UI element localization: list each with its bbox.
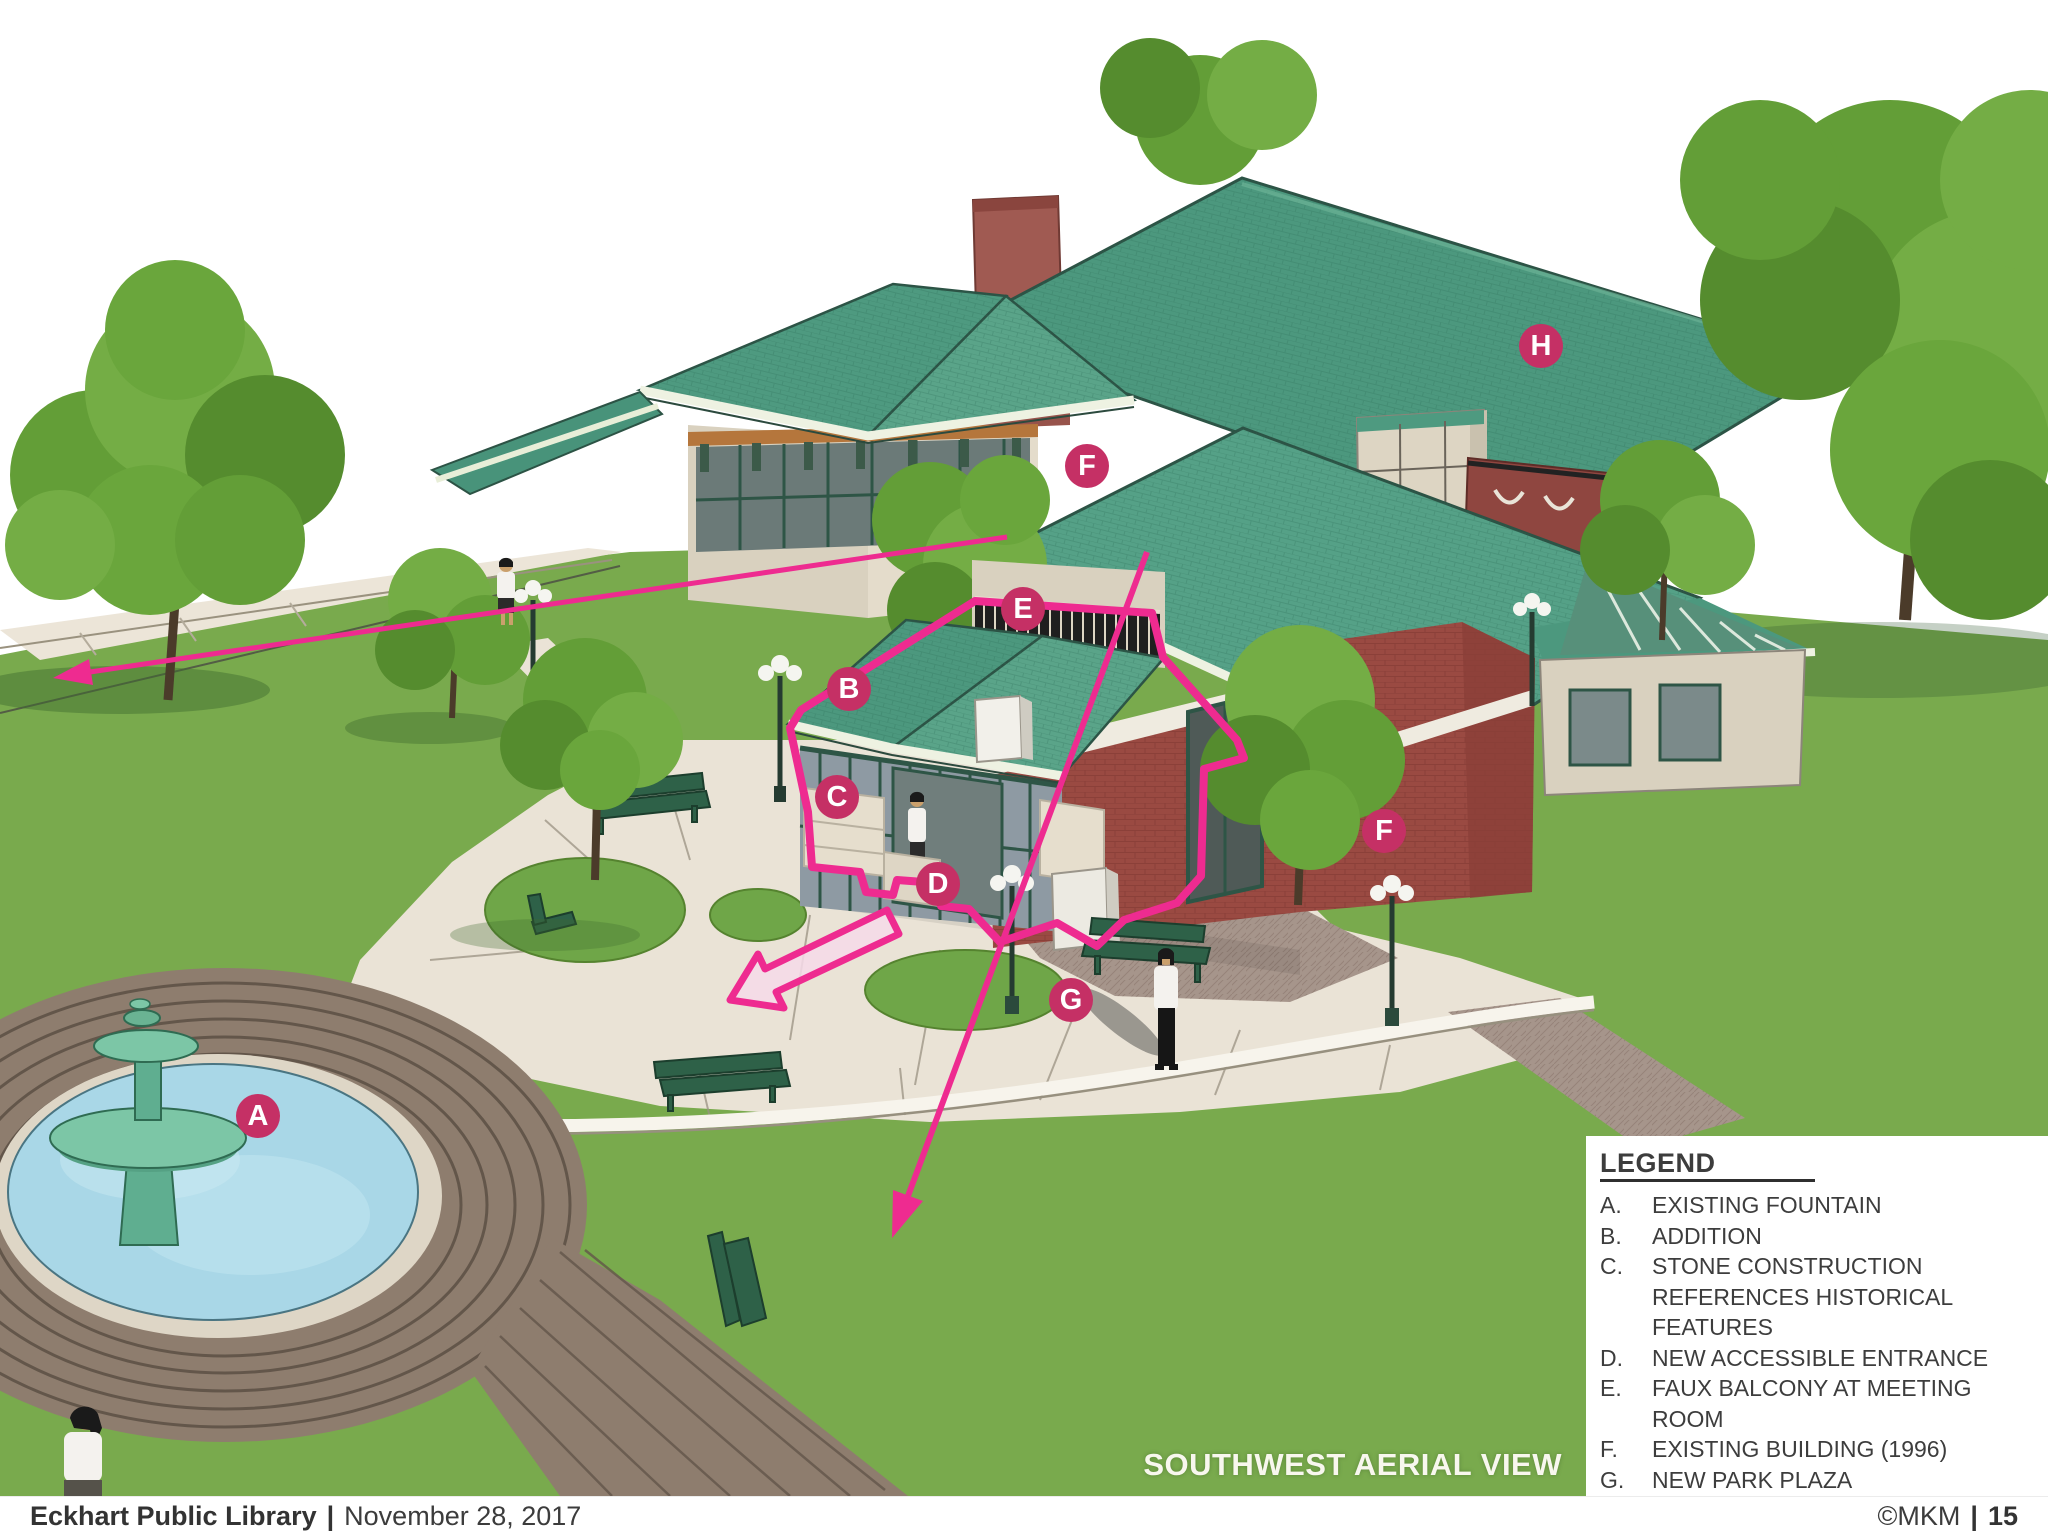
footer-bar: Eckhart Public Library|November 28, 2017…: [0, 1496, 2048, 1536]
legend-title: LEGEND: [1600, 1148, 1815, 1182]
legend-item-key: A.: [1600, 1190, 1652, 1221]
marker-A-existing-fountain: A: [236, 1094, 280, 1138]
marker-F-existing-building-1996-wall: F: [1362, 809, 1406, 853]
right-wing-walls: [1540, 650, 1805, 795]
legend-item-D: D.NEW ACCESSIBLE ENTRANCE: [1600, 1343, 2048, 1374]
legend-item-key: C.: [1600, 1251, 1652, 1343]
footer-org: Eckhart Public Library: [30, 1501, 317, 1531]
legend-panel: LEGEND A.EXISTING FOUNTAINB.ADDITIONC.ST…: [1586, 1136, 2048, 1496]
legend-item-G: G.NEW PARK PLAZA: [1600, 1465, 2048, 1496]
left-roof-wing: [432, 392, 662, 494]
legend-item-label: EXISTING FOUNTAIN: [1652, 1190, 2048, 1221]
view-caption: SOUTHWEST AERIAL VIEW: [1143, 1447, 1562, 1483]
legend-item-label: NEW ACCESSIBLE ENTRANCE: [1652, 1343, 2048, 1374]
presentation-slide: ABCDEFFGH SOUTHWEST AERIAL VIEW LEGEND A…: [0, 0, 2048, 1536]
legend-item-label: NEW PARK PLAZA: [1652, 1465, 2048, 1496]
legend-item-key: G.: [1600, 1465, 1652, 1496]
legend-item-B: B.ADDITION: [1600, 1221, 2048, 1252]
footer-copyright: ©MKM: [1878, 1501, 1961, 1531]
footer-separator: |: [327, 1501, 335, 1531]
footer-date: November 28, 2017: [344, 1501, 581, 1531]
fountain-pool: [8, 1064, 418, 1320]
legend-item-A: A.EXISTING FOUNTAIN: [1600, 1190, 2048, 1221]
marker-G-new-park-plaza: G: [1049, 978, 1093, 1022]
marker-E-faux-balcony-at-meeting-room: E: [1001, 587, 1045, 631]
marker-F-existing-building-1996-roof: F: [1065, 444, 1109, 488]
legend-item-C: C.STONE CONSTRUCTIONREFERENCES HISTORICA…: [1600, 1251, 2048, 1343]
legend-item-key: B.: [1600, 1221, 1652, 1252]
legend-item-F: F.EXISTING BUILDING (1996): [1600, 1434, 2048, 1465]
legend-item-label: EXISTING BUILDING (1996): [1652, 1434, 2048, 1465]
marker-B-addition: B: [827, 667, 871, 711]
footer-left: Eckhart Public Library|November 28, 2017: [30, 1501, 581, 1532]
legend-item-label: STONE CONSTRUCTIONREFERENCES HISTORICAL …: [1652, 1251, 2048, 1343]
footer-page-number: 15: [1988, 1501, 2018, 1531]
legend-item-key: E.: [1600, 1373, 1652, 1434]
marker-C-stone-construction: C: [815, 775, 859, 819]
legend-item-E: E.FAUX BALCONY AT MEETING ROOM: [1600, 1373, 2048, 1434]
legend-item-label: ADDITION: [1652, 1221, 2048, 1252]
legend-item-label: FAUX BALCONY AT MEETING ROOM: [1652, 1373, 2048, 1434]
marker-D-new-accessible-entrance: D: [916, 862, 960, 906]
legend-item-key: D.: [1600, 1343, 1652, 1374]
footer-separator: |: [1970, 1501, 1978, 1531]
legend-items: A.EXISTING FOUNTAINB.ADDITIONC.STONE CON…: [1586, 1190, 2048, 1526]
marker-H-existing-building-1911: H: [1519, 324, 1563, 368]
footer-right: ©MKM|15: [1878, 1501, 2019, 1532]
legend-item-key: F.: [1600, 1434, 1652, 1465]
tree: [1100, 38, 1317, 185]
